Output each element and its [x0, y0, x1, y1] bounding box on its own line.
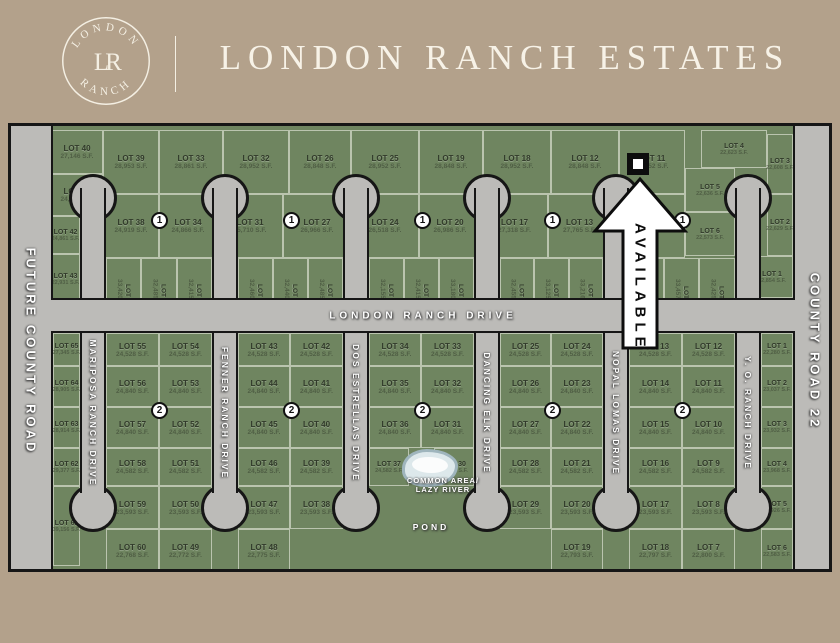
- lot-number: LOT 18: [503, 154, 530, 163]
- lot-number: LOT 12: [695, 342, 722, 351]
- lot-square-footage: 26,518 S.F.: [369, 227, 402, 234]
- lot-parcel-lot-21-unit2: LOT 2124,582 S.F.: [551, 448, 603, 486]
- street-fenner-ranch-drive: FENNER RANCH DRIVE: [212, 333, 238, 493]
- street-north-stub-1: [80, 188, 106, 298]
- lot-square-footage: 24,528 S.F.: [116, 351, 149, 358]
- lot-number: LOT 29: [512, 500, 539, 509]
- lot-number: LOT 46: [250, 459, 277, 468]
- lot-parcel-lot-4-unit2: LOT 423,968 S.F.: [761, 448, 793, 486]
- lot-parcel-lot-54-unit2: LOT 5424,528 S.F.: [159, 333, 212, 366]
- lot-number: LOT 6: [767, 545, 787, 552]
- street-name-label: MARIPOSA RANCH DRIVE: [88, 340, 98, 487]
- lot-square-footage: 22,636 S.F.: [696, 191, 724, 197]
- lot-square-footage: 22,772 S.F.: [169, 552, 202, 559]
- street-name-label: NOPAL LOMAS DRIVE: [611, 351, 621, 475]
- lot-square-footage: 22,768 S.F.: [116, 552, 149, 559]
- page-title: LONDON RANCH ESTATES: [200, 38, 810, 78]
- lot-parcel-lot-35-unit2: LOT 3524,840 S.F.: [369, 366, 421, 407]
- lot-square-footage: 24,840 S.F.: [169, 429, 202, 436]
- available-label: AVAILABLE: [623, 231, 657, 343]
- road-county-road-22: COUNTY ROAD 22: [793, 126, 832, 572]
- lot-number: LOT 55: [119, 342, 146, 351]
- lot-number: LOT 59: [119, 500, 146, 509]
- lot-square-footage: 23,593 S.F.: [169, 509, 202, 516]
- lot-square-footage: 24,528 S.F.: [692, 351, 725, 358]
- lot-square-footage: 22,573 S.F.: [696, 235, 724, 241]
- lot-square-footage: 24,582 S.F.: [248, 468, 281, 475]
- lot-square-footage: 23,593 S.F.: [300, 509, 333, 516]
- lot-number: LOT 16: [642, 459, 669, 468]
- unit-1-badge: 1: [544, 212, 561, 229]
- lot-square-footage: 25,710 S.F.: [234, 227, 267, 234]
- lot-square-footage: 22,775 S.F.: [248, 552, 281, 559]
- lot-parcel-lot-23-unit2: LOT 2324,840 S.F.: [551, 366, 603, 407]
- lot-number: LOT 2: [767, 380, 787, 387]
- road-future-county-road: FUTURE COUNTY ROAD: [11, 126, 53, 572]
- lot-number: LOT 17: [642, 500, 669, 509]
- lot-square-footage: 22,608 S.F.: [766, 165, 794, 171]
- lot-number: LOT 21: [563, 459, 590, 468]
- london-ranch-logo: LONDON RANCH LR: [60, 15, 152, 107]
- unit-1-badge: 1: [283, 212, 300, 229]
- lot-square-footage: 24,840 S.F.: [300, 429, 333, 436]
- lot-square-footage: 39,156 S.F.: [53, 527, 81, 533]
- lot-number: LOT 19: [437, 154, 464, 163]
- lot-square-footage: 28,848 S.F.: [304, 163, 337, 170]
- lot-square-footage: 22,931 S.F.: [52, 280, 80, 286]
- lot-number: LOT 34: [381, 342, 408, 351]
- lot-square-footage: 24,919 S.F.: [115, 227, 148, 234]
- lot-number: LOT 63: [55, 421, 79, 428]
- lot-square-footage: 24,840 S.F.: [431, 388, 464, 395]
- street-mariposa-ranch-drive: MARIPOSA RANCH DRIVE: [80, 333, 106, 493]
- street-nopal-lomas-drive: NOPAL LOMAS DRIVE: [603, 333, 629, 493]
- lot-number: LOT 32: [242, 154, 269, 163]
- lot-number: LOT 1: [762, 271, 782, 278]
- lot-number: LOT 18: [642, 543, 669, 552]
- lot-square-footage: 22,583 S.F.: [763, 552, 791, 558]
- lot-parcel-lot-1-unit2: LOT 122,280 S.F.: [761, 333, 793, 366]
- lot-square-footage: 24,840 S.F.: [116, 388, 149, 395]
- lot-square-footage: 24,582 S.F.: [509, 468, 542, 475]
- lot-square-footage: 28,848 S.F.: [569, 163, 602, 170]
- lot-square-footage: 24,840 S.F.: [431, 429, 464, 436]
- lot-number: LOT 6: [700, 228, 720, 235]
- lot-square-footage: 28,914 S.F.: [53, 428, 81, 434]
- lot-square-footage: 24,840 S.F.: [248, 429, 281, 436]
- lot-square-footage: 24,582 S.F.: [692, 468, 725, 475]
- lot-parcel-lot-43-unit2: LOT 4324,528 S.F.: [238, 333, 290, 366]
- logo-bottom-text: RANCH: [78, 76, 135, 98]
- lot-parcel-lot-49-unit2: LOT 4922,772 S.F.: [159, 529, 212, 572]
- lot-square-footage: 42,854 S.F.: [758, 278, 786, 284]
- lot-number: LOT 2: [770, 219, 790, 226]
- lot-parcel-lot-27-unit2: LOT 2724,840 S.F.: [500, 407, 551, 448]
- lot-number: LOT 40: [63, 144, 90, 153]
- lot-parcel-lot-58-unit2: LOT 5824,582 S.F.: [106, 448, 159, 486]
- lot-number: LOT 4: [767, 461, 787, 468]
- unit-1-badge: 1: [414, 212, 431, 229]
- lot-parcel-lot-42-unit1: LOT 4224,861 S.F.: [51, 216, 80, 254]
- lot-parcel-lot-63-unit2: LOT 6328,914 S.F.: [53, 407, 80, 448]
- unit-2-badge: 2: [283, 402, 300, 419]
- street-dancing-elk-drive: DANCING ELK DRIVE: [474, 333, 500, 493]
- lot-number: LOT 9: [697, 459, 720, 468]
- lot-square-footage: 28,952 S.F.: [369, 163, 402, 170]
- lot-parcel-lot-44-unit2: LOT 4424,840 S.F.: [238, 366, 290, 407]
- lot-square-footage: 23,932 S.F.: [763, 428, 791, 434]
- lot-number: LOT 39: [117, 154, 144, 163]
- lot-square-footage: 28,952 S.F.: [501, 163, 534, 170]
- lot-number: LOT 15: [642, 420, 669, 429]
- lot-number: LOT 26: [512, 379, 539, 388]
- lot-square-footage: 24,840 S.F.: [692, 388, 725, 395]
- lot-square-footage: 24,528 S.F.: [248, 351, 281, 358]
- lot-number: LOT 40: [303, 420, 330, 429]
- lot-number: LOT 42: [303, 342, 330, 351]
- plat-map: FUTURE COUNTY ROAD COUNTY ROAD 22 LONDON…: [8, 123, 832, 572]
- lot-parcel-lot-19-unit2: LOT 1922,793 S.F.: [551, 529, 603, 572]
- lot-square-footage: 24,528 S.F.: [431, 351, 464, 358]
- lot-number: LOT 38: [117, 218, 144, 227]
- pond-label: POND: [381, 522, 481, 532]
- lot-number: LOT 43: [54, 273, 78, 280]
- street-north-stub-4: [474, 188, 500, 298]
- street-name-label: DOS ESTRELLAS DRIVE: [351, 344, 361, 482]
- lot-parcel-lot-3-unit1: LOT 322,608 S.F.: [767, 134, 793, 194]
- lot-number: LOT 58: [119, 459, 146, 468]
- lot-number: LOT 22: [563, 420, 590, 429]
- lot-square-footage: 28,905 S.F.: [53, 387, 81, 393]
- lot-parcel-lot-7-unit2: LOT 722,800 S.F.: [682, 529, 735, 572]
- lot-square-footage: 23,968 S.F.: [763, 468, 791, 474]
- lot-square-footage: 24,840 S.F.: [639, 388, 672, 395]
- unit-2-badge: 2: [151, 402, 168, 419]
- lot-square-footage: 22,800 S.F.: [692, 552, 725, 559]
- lot-number: LOT 20: [436, 218, 463, 227]
- flyer-root: LONDON RANCH LR LONDON RANCH ESTATES FUT…: [0, 0, 840, 643]
- unit-2-badge: 2: [674, 402, 691, 419]
- lot-number: LOT 3: [770, 158, 790, 165]
- lot-square-footage: 24,840 S.F.: [639, 429, 672, 436]
- lot-square-footage: 22,797 S.F.: [639, 552, 672, 559]
- lot-parcel-lot-25-unit2: LOT 2524,528 S.F.: [500, 333, 551, 366]
- lot-number: LOT 60: [119, 543, 146, 552]
- lot-square-footage: 24,528 S.F.: [300, 351, 333, 358]
- lot-square-footage: 24,840 S.F.: [300, 388, 333, 395]
- lot-parcel-lot-2-unit2: LOT 223,037 S.F.: [761, 366, 793, 407]
- lot-number: LOT 33: [177, 154, 204, 163]
- lot-parcel-lot-11-unit2: LOT 1124,840 S.F.: [682, 366, 735, 407]
- lot-parcel-lot-56-unit2: LOT 5624,840 S.F.: [106, 366, 159, 407]
- lot-number: LOT 44: [250, 379, 277, 388]
- lot-number: LOT 56: [119, 379, 146, 388]
- lot-parcel-lot-40-unit1: LOT 4027,146 S.F.: [51, 130, 103, 174]
- lot-number: LOT 8: [697, 500, 720, 509]
- header-divider: [175, 36, 176, 92]
- lot-number: LOT 41: [303, 379, 330, 388]
- lazy-river-highlight: [412, 457, 448, 473]
- lot-square-footage: 22,623 S.F.: [720, 150, 748, 156]
- lot-square-footage: 24,528 S.F.: [169, 351, 202, 358]
- street-name-label: DANCING ELK DRIVE: [482, 352, 492, 473]
- lot-number: LOT 17: [501, 218, 528, 227]
- lot-square-footage: 23,593 S.F.: [509, 509, 542, 516]
- lot-number: LOT 37: [377, 461, 401, 468]
- lot-parcel-lot-51-unit2: LOT 5124,582 S.F.: [159, 448, 212, 486]
- lot-square-footage: 24,840 S.F.: [561, 429, 594, 436]
- unit-1-badge: 1: [151, 212, 168, 229]
- street-north-stub-2: [212, 188, 238, 298]
- lot-parcel-lot-62-unit2: LOT 6229,377 S.F.: [53, 448, 80, 486]
- lot-number: LOT 48: [250, 543, 277, 552]
- lot-parcel-lot-33-unit2: LOT 3324,528 S.F.: [421, 333, 474, 366]
- lot-square-footage: 24,840 S.F.: [116, 429, 149, 436]
- lot-number: LOT 27: [512, 420, 539, 429]
- lot-number: LOT 31: [236, 218, 263, 227]
- lot-square-footage: 28,953 S.F.: [115, 163, 148, 170]
- road-county-road-22-label: COUNTY ROAD 22: [808, 272, 823, 429]
- available-lot-marker: [627, 153, 649, 175]
- lot-number: LOT 25: [512, 342, 539, 351]
- lot-square-footage: 24,840 S.F.: [248, 388, 281, 395]
- lot-square-footage: 24,582 S.F.: [639, 468, 672, 475]
- lot-square-footage: 23,593 S.F.: [248, 509, 281, 516]
- lot-square-footage: 24,582 S.F.: [169, 468, 202, 475]
- lot-parcel-lot-55-unit2: LOT 5524,528 S.F.: [106, 333, 159, 366]
- lot-square-footage: 24,840 S.F.: [692, 429, 725, 436]
- lot-number: LOT 26: [306, 154, 333, 163]
- lot-parcel-lot-42-unit2: LOT 4224,528 S.F.: [290, 333, 343, 366]
- lot-parcel-lot-18-unit2: LOT 1822,797 S.F.: [629, 529, 682, 572]
- header: LONDON RANCH LR LONDON RANCH ESTATES: [0, 0, 840, 123]
- lot-number: LOT 39: [303, 459, 330, 468]
- street-name-label: FENNER RANCH DRIVE: [220, 347, 230, 479]
- common-area-label: COMMON AREA/ LAZY RIVER: [383, 476, 503, 494]
- lot-number: LOT 42: [54, 229, 78, 236]
- lot-number: LOT 1: [767, 343, 787, 350]
- lot-parcel-lot-43-unit1: LOT 4322,931 S.F.: [51, 254, 80, 304]
- lot-square-footage: 27,146 S.F.: [61, 153, 94, 160]
- road-future-county-road-label: FUTURE COUNTY ROAD: [24, 247, 39, 454]
- lot-number: LOT 53: [172, 379, 199, 388]
- lot-number: LOT 57: [119, 420, 146, 429]
- lot-parcel-lot-41-unit2: LOT 4124,840 S.F.: [290, 366, 343, 407]
- lot-parcel-lot-60-unit2: LOT 6022,768 S.F.: [106, 529, 159, 572]
- lot-number: LOT 7: [697, 543, 720, 552]
- lot-number: LOT 20: [563, 500, 590, 509]
- lot-parcel-lot-6-unit2: LOT 622,583 S.F.: [761, 529, 793, 572]
- lot-square-footage: 26,986 S.F.: [434, 227, 467, 234]
- lot-square-footage: 24,582 S.F.: [375, 468, 403, 474]
- lot-parcel-lot-39-unit2: LOT 3924,582 S.F.: [290, 448, 343, 486]
- lot-parcel-lot-16-unit2: LOT 1624,582 S.F.: [629, 448, 682, 486]
- lot-parcel-lot-4-unit1: LOT 422,623 S.F.: [701, 130, 767, 168]
- lot-number: LOT 34: [174, 218, 201, 227]
- lot-number: LOT 49: [172, 543, 199, 552]
- lot-parcel-lot-48-unit2: LOT 4822,775 S.F.: [238, 529, 290, 572]
- lot-parcel-lot-32-unit2: LOT 3224,840 S.F.: [421, 366, 474, 407]
- lot-number: LOT 43: [250, 342, 277, 351]
- lot-square-footage: 24,840 S.F.: [379, 388, 412, 395]
- lot-number: LOT 28: [512, 459, 539, 468]
- street-north-stub-3: [343, 188, 369, 298]
- lot-number: LOT 38: [303, 500, 330, 509]
- lot-number: LOT 35: [381, 379, 408, 388]
- lot-parcel-lot-46-unit2: LOT 4624,582 S.F.: [238, 448, 290, 486]
- lot-square-footage: 24,840 S.F.: [561, 388, 594, 395]
- lot-parcel-lot-53-unit2: LOT 5324,840 S.F.: [159, 366, 212, 407]
- lot-square-footage: 28,848 S.F.: [435, 163, 468, 170]
- lot-square-footage: 24,582 S.F.: [561, 468, 594, 475]
- lot-number: LOT 36: [381, 420, 408, 429]
- street-north-stub-6: [735, 188, 761, 298]
- lot-number: LOT 51: [172, 459, 199, 468]
- lot-parcel-lot-28-unit2: LOT 2824,582 S.F.: [500, 448, 551, 486]
- lot-parcel-lot-9-unit2: LOT 924,582 S.F.: [682, 448, 735, 486]
- lot-square-footage: 28,952 S.F.: [240, 163, 273, 170]
- unit-2-badge: 2: [544, 402, 561, 419]
- lot-square-footage: 24,840 S.F.: [169, 388, 202, 395]
- lot-parcel-lot-14-unit2: LOT 1424,840 S.F.: [629, 366, 682, 407]
- lot-square-footage: 23,593 S.F.: [116, 509, 149, 516]
- lot-number: LOT 65: [55, 343, 79, 350]
- lot-square-footage: 24,840 S.F.: [509, 429, 542, 436]
- lot-number: LOT 11: [695, 379, 722, 388]
- lot-number: LOT 24: [371, 218, 398, 227]
- lot-number: LOT 31: [434, 420, 461, 429]
- lot-number: LOT 50: [172, 500, 199, 509]
- lot-number: LOT 33: [434, 342, 461, 351]
- lot-number: LOT 10: [695, 420, 722, 429]
- lot-number: LOT 45: [250, 420, 277, 429]
- street-dos-estrellas-drive: DOS ESTRELLAS DRIVE: [343, 333, 369, 493]
- lot-parcel-lot-3-unit2: LOT 323,932 S.F.: [761, 407, 793, 448]
- unit-2-badge: 2: [414, 402, 431, 419]
- lot-number: LOT 62: [55, 461, 79, 468]
- lot-square-footage: 24,582 S.F.: [116, 468, 149, 475]
- lot-number: LOT 25: [371, 154, 398, 163]
- lot-square-footage: 24,528 S.F.: [379, 351, 412, 358]
- lot-square-footage: 29,377 S.F.: [53, 468, 81, 474]
- lot-square-footage: 23,593 S.F.: [561, 509, 594, 516]
- lot-square-footage: 24,840 S.F.: [509, 388, 542, 395]
- lot-square-footage: 27,345 S.F.: [53, 350, 81, 356]
- lot-square-footage: 24,582 S.F.: [300, 468, 333, 475]
- lot-square-footage: 24,528 S.F.: [509, 351, 542, 358]
- lot-number: LOT 12: [571, 154, 598, 163]
- lot-square-footage: 28,861 S.F.: [175, 163, 208, 170]
- lot-square-footage: 22,793 S.F.: [561, 552, 594, 559]
- lot-number: LOT 23: [563, 379, 590, 388]
- lot-square-footage: 24,866 S.F.: [172, 227, 205, 234]
- lot-number: LOT 52: [172, 420, 199, 429]
- lot-parcel-lot-64-unit2: LOT 6428,905 S.F.: [53, 366, 80, 407]
- lot-square-footage: 22,280 S.F.: [763, 350, 791, 356]
- street-y-o-ranch-drive: Y. O. RANCH DRIVE: [735, 333, 761, 493]
- lot-number: LOT 3: [767, 421, 787, 428]
- lot-square-footage: 23,593 S.F.: [692, 509, 725, 516]
- lot-square-footage: 24,840 S.F.: [379, 429, 412, 436]
- lot-square-footage: 26,966 S.F.: [301, 227, 334, 234]
- street-name-label: Y. O. RANCH DRIVE: [743, 356, 753, 470]
- lot-number: LOT 32: [434, 379, 461, 388]
- lot-number: LOT 27: [303, 218, 330, 227]
- lot-square-footage: 22,629 S.F.: [766, 226, 794, 232]
- lot-square-footage: 27,318 S.F.: [498, 227, 531, 234]
- lot-parcel-lot-45-unit2: LOT 4524,840 S.F.: [238, 407, 290, 448]
- lot-parcel-lot-34-unit2: LOT 3424,528 S.F.: [369, 333, 421, 366]
- lot-number: LOT 47: [250, 500, 277, 509]
- lot-square-footage: 24,861 S.F.: [52, 236, 80, 242]
- lot-number: LOT 19: [563, 543, 590, 552]
- lot-number: LOT 54: [172, 342, 199, 351]
- lot-number: LOT 5: [700, 184, 720, 191]
- lot-parcel-lot-36-unit2: LOT 3624,840 S.F.: [369, 407, 421, 448]
- lot-square-footage: 23,593 S.F.: [639, 509, 672, 516]
- lot-number: LOT 4: [724, 143, 744, 150]
- lot-square-footage: 23,037 S.F.: [763, 387, 791, 393]
- logo-monogram: LR: [94, 49, 122, 76]
- lot-parcel-lot-65-unit2: LOT 6527,345 S.F.: [53, 333, 80, 366]
- lot-number: LOT 64: [55, 380, 79, 387]
- lot-number: LOT 14: [642, 379, 669, 388]
- lot-parcel-lot-26-unit2: LOT 2624,840 S.F.: [500, 366, 551, 407]
